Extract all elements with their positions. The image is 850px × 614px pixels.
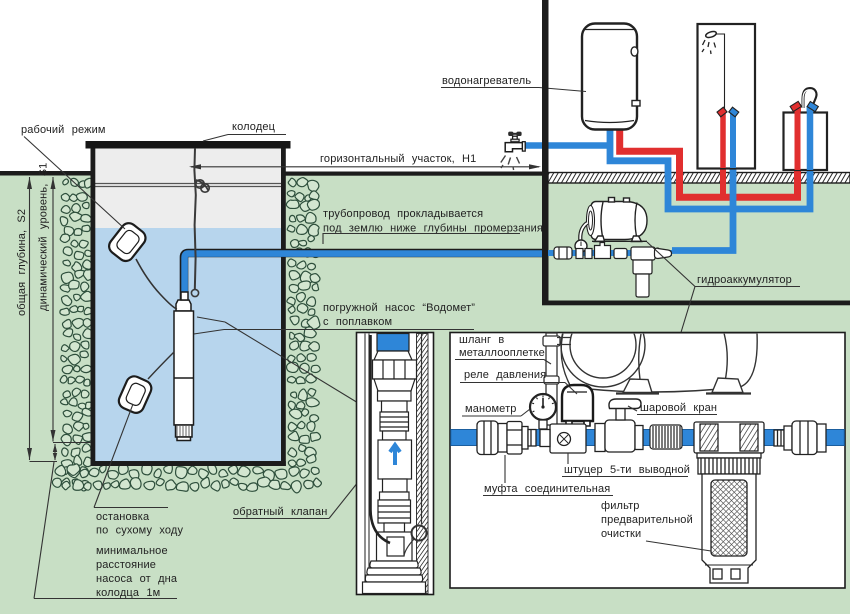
svg-text:рабочий режим: рабочий режим [21,124,106,136]
svg-text:с поплавком: с поплавком [323,316,392,328]
svg-text:очистки: очистки [601,528,641,540]
svg-text:водонагреватель: водонагреватель [442,75,531,87]
svg-text:реле давления: реле давления [464,369,546,381]
svg-text:муфта соединительная: муфта соединительная [484,483,610,495]
svg-text:расстояние: расстояние [96,559,156,571]
svg-text:погружной насос “Водомет”: погружной насос “Водомет” [323,302,475,314]
svg-text:шаровой кран: шаровой кран [640,402,717,414]
svg-text:общая глубина, S2: общая глубина, S2 [16,209,28,316]
svg-text:манометр: манометр [465,403,517,415]
svg-text:обратный клапан: обратный клапан [233,506,328,518]
svg-text:шланг в: шланг в [459,334,504,346]
svg-text:штуцер 5-ти выводной: штуцер 5-ти выводной [564,464,690,476]
svg-text:колодец: колодец [232,121,276,133]
svg-text:фильтр: фильтр [601,500,640,512]
svg-text:трубопровод прокладывается: трубопровод прокладывается [323,208,483,220]
svg-text:минимальное: минимальное [96,545,168,557]
svg-text:металлооплетке: металлооплетке [459,347,545,359]
svg-text:колодца 1м: колодца 1м [96,587,160,599]
svg-text:по сухому ходу: по сухому ходу [96,525,183,537]
svg-text:под землю ниже глубины промерз: под землю ниже глубины промерзания [323,223,543,235]
svg-text:динамический уровень, S1: динамический уровень, S1 [38,163,50,311]
svg-text:гидроаккумулятор: гидроаккумулятор [697,274,792,286]
svg-text:горизонтальный участок, Н1: горизонтальный участок, Н1 [320,153,476,165]
svg-text:остановка: остановка [96,511,150,523]
svg-text:насоса от дна: насоса от дна [96,573,178,585]
svg-text:предварительной: предварительной [601,514,693,526]
